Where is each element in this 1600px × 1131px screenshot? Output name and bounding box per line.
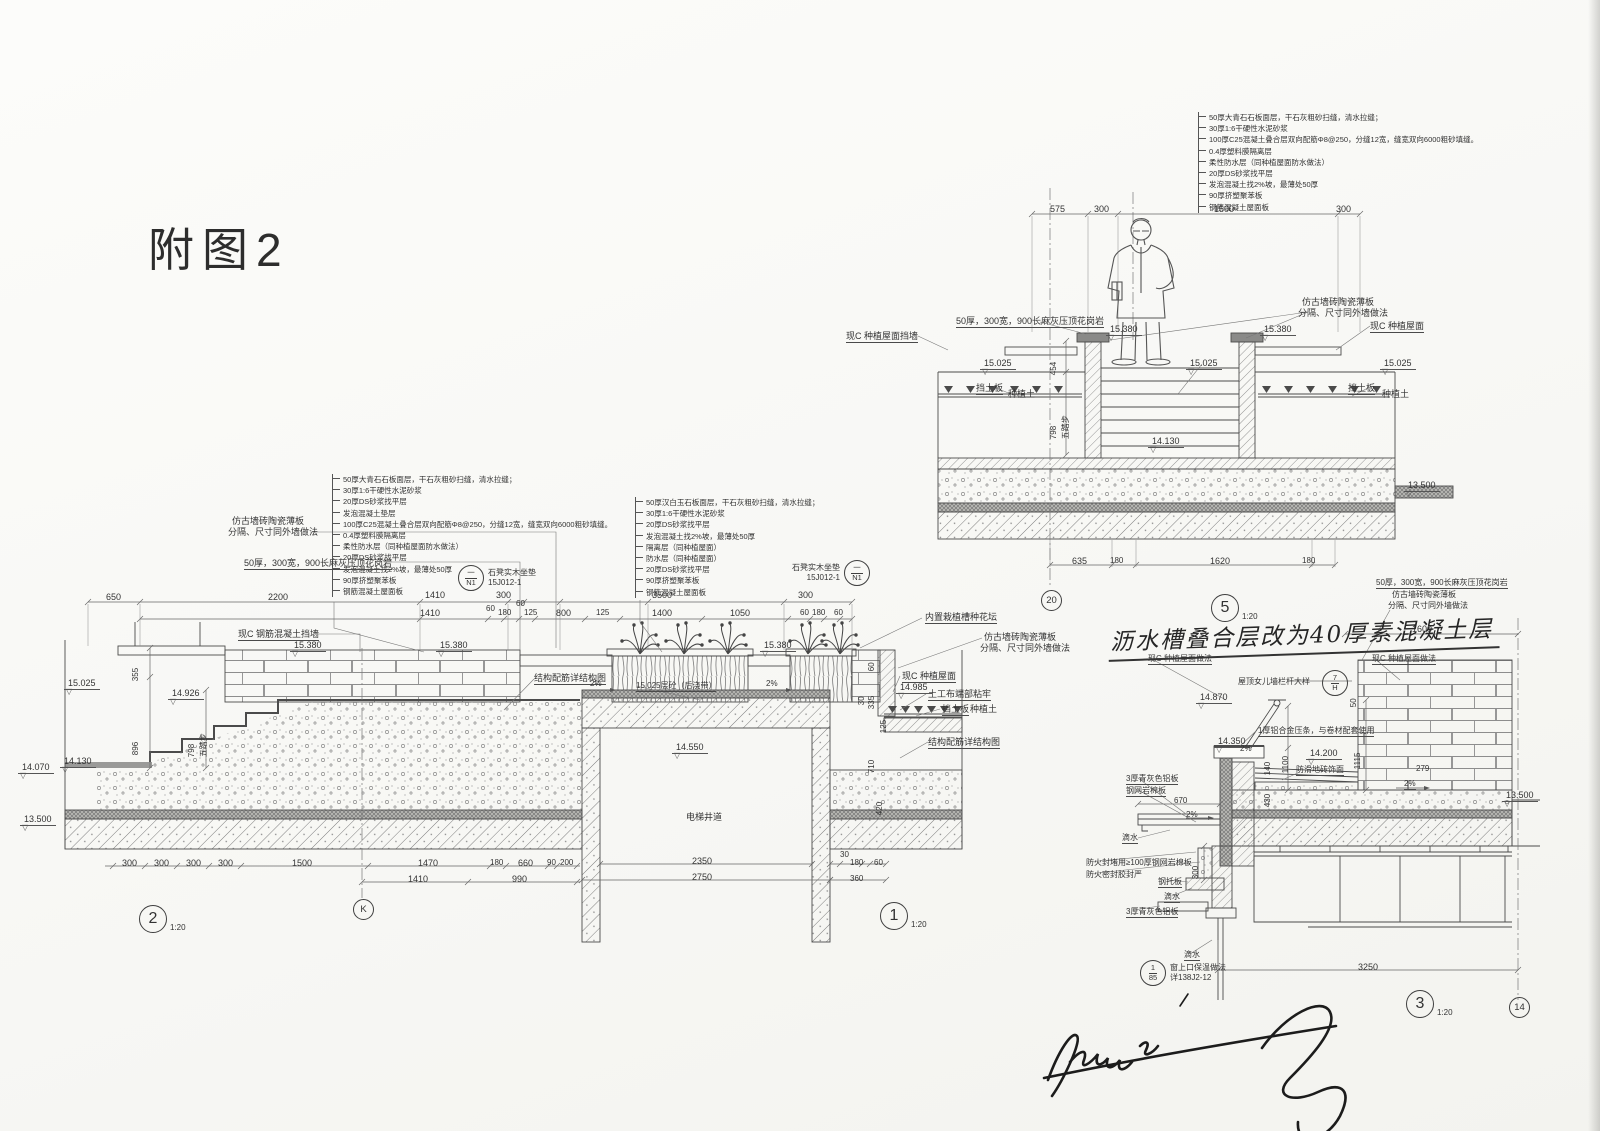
label-tile-panel: 仿古墙砖陶瓷薄板 <box>1302 297 1374 307</box>
label-tile-panel: 分隔、尺寸同外墙做法 <box>1298 308 1388 318</box>
label-tile-panel: 分隔、尺寸同外墙做法 <box>228 527 318 537</box>
label-soil: 种植土 <box>1382 389 1409 399</box>
label-green-roof: 现C 种植屋面 <box>1370 321 1424 333</box>
layer-line: 隔离层（同种植屋面） <box>636 542 819 553</box>
detail-ref-bubble: 7 H <box>1322 670 1348 696</box>
elevation: 15.380 <box>436 640 472 652</box>
layer-line: 30厚1:6干硬性水泥砂浆 <box>333 485 612 496</box>
drawing-sheet: 附图2 50厚大青石石板面层，干石灰粗砂扫缝，清水拉缝；30厚1:6干硬性水泥砂… <box>0 0 1600 1131</box>
dim: 990 <box>512 874 527 884</box>
dim: 335 <box>867 696 876 709</box>
slope: 2% <box>1240 744 1252 753</box>
dim: 1050 <box>730 608 750 618</box>
label-rebar: 结构配筋详结构图 <box>928 737 1000 749</box>
dim: 125 <box>596 608 609 617</box>
layer-line: 30厚1:6干硬性水泥砂浆 <box>1199 123 1478 134</box>
dim: 454 <box>1049 362 1058 375</box>
elevation: 15.025 <box>980 358 1016 370</box>
dim: 300 <box>1336 204 1351 214</box>
dim: 125 <box>879 720 888 733</box>
elevation: 14.200 <box>1306 748 1342 760</box>
dim: 1115 <box>1353 753 1362 770</box>
bench-label: 石凳实木坐垫 <box>488 568 536 578</box>
dim: 180 <box>850 858 863 867</box>
label-coping: 50厚，300宽，900长麻灰压顶花岗岩 <box>1376 578 1508 589</box>
dim: 1620 <box>1210 556 1230 566</box>
dim: 五踏步 <box>1061 415 1070 439</box>
label-steel-plate: 钢托板 <box>1158 877 1182 888</box>
layer-line: 发泡混凝土找2%坡，最薄处50厚 <box>636 531 819 542</box>
label-parapet: 屋顶女儿墙栏杆大样 <box>1238 677 1310 686</box>
elevation: 15.380 <box>760 640 796 652</box>
dim: 140 <box>1263 762 1272 775</box>
label-geotextile: 土工布端部粘牢 <box>928 689 991 701</box>
ref-bottom: N1 <box>466 579 476 587</box>
elevation: 14.926 <box>168 688 204 700</box>
dim: 635 <box>1072 556 1087 566</box>
elevation: 15.380 <box>1106 324 1142 336</box>
ref-bottom: 85 <box>1149 974 1157 982</box>
dim: 60 <box>834 608 843 617</box>
layer-line: 50厚汉白玉石板面层，干石灰粗砂扫缝，清水拉缝； <box>636 497 819 508</box>
dim: 355 <box>131 668 140 681</box>
grid-bubble-20: 20 <box>1041 590 1062 611</box>
dim: 300 <box>496 590 511 600</box>
elevation: 14.070 <box>18 762 54 774</box>
dim: 1400 <box>652 608 672 618</box>
detail-bubble-2: 2 1:20 <box>139 905 186 933</box>
label-tile-panel: 仿古墙砖陶瓷薄板 <box>1392 590 1456 599</box>
dim: 650 <box>106 592 121 602</box>
window-ref: 详138J2-12 <box>1170 973 1226 983</box>
label-tile-panel: 分隔、尺寸同外墙做法 <box>1388 601 1468 610</box>
label-drip: 滴水 <box>1122 833 1138 844</box>
layer-line: 柔性防水层（同种植屋面防水做法） <box>333 541 612 552</box>
dim: 3250 <box>1358 962 1378 972</box>
dim: 60 <box>516 599 525 608</box>
detail-number: 1 <box>880 902 908 930</box>
dim: 2350 <box>692 856 712 866</box>
layer-line: 发泡混凝土垫层 <box>333 508 612 519</box>
detail-ref-bubble: 一 N1 <box>844 560 870 586</box>
label-soil: 种植土 <box>970 704 997 714</box>
detail-bubble-1: 1 1:20 <box>880 902 927 930</box>
label-soil-board: 挡土板 <box>942 704 969 716</box>
label-pour-strip: 15.025层砼（后浇带） <box>636 681 716 692</box>
label-drip: 滴水 <box>1164 892 1180 903</box>
dim: 1410 <box>408 874 428 884</box>
signature <box>1044 994 1345 1131</box>
slope: 2% <box>1186 810 1198 819</box>
layer-line: 柔性防水层（同种植屋面防水做法） <box>1199 157 1478 168</box>
elevation: 15.025 <box>1380 358 1416 370</box>
dim: 1410 <box>425 590 445 600</box>
label-tile-panel: 仿古墙砖陶瓷薄板 <box>232 516 304 526</box>
dim: 420 <box>875 802 884 815</box>
dim: 90 <box>547 858 556 867</box>
bench-ref: 15J012-1 <box>488 578 536 588</box>
elevation: 14.130 <box>60 756 96 768</box>
dim: 575 <box>1050 204 1065 214</box>
grid-bubble-14: 14 <box>1509 997 1530 1018</box>
detail-scale: 1:20 <box>170 923 186 933</box>
layer-line: 50厚大青石石板面层，干石灰粗砂扫缝，清水拉缝； <box>333 474 612 485</box>
slope: 2% <box>1404 779 1416 790</box>
elevation: 15.380 <box>290 640 326 652</box>
label-fire-seal: 防火密封胶封严 <box>1086 870 1142 879</box>
elevation: 14.130 <box>1148 436 1184 448</box>
detail-ref-bubble: 1 85 <box>1140 960 1166 986</box>
layer-line: 0.4厚塑料膜隔离层 <box>1199 146 1478 157</box>
bench-label: 石凳实木坐垫 <box>792 563 840 573</box>
dim: 300 <box>798 590 813 600</box>
elevator-shaft-label: 电梯井道 <box>686 812 722 822</box>
dim: 125 <box>524 608 537 617</box>
label-green-roof: 现C 种植屋面 <box>902 671 956 683</box>
layer-line: 0.4厚塑料膜隔离层 <box>333 530 612 541</box>
label-al-strip: 1厚铝合金压条，与卷材配套使用 <box>1258 726 1374 737</box>
dim: 798 <box>187 744 196 757</box>
dim: 30 <box>840 850 849 859</box>
label-tile: 防滑地砖饰面 <box>1296 765 1344 776</box>
dim: 300 <box>218 858 233 868</box>
layer-line: 30厚1:6干硬性水泥砂浆 <box>636 508 819 519</box>
dim: 1500 <box>292 858 312 868</box>
layer-stack-topright: 50厚大青石石板面层，干石灰粗砂扫缝，清水拉缝；30厚1:6干硬性水泥砂浆100… <box>1198 112 1478 213</box>
label-tile-panel: 分隔、尺寸同外墙做法 <box>980 643 1070 653</box>
label-wall: 现C 种植屋面挡墙 <box>846 331 918 343</box>
callout-window-head: 1 85 窗上口保温做法 详138J2-12 <box>1140 960 1226 986</box>
elevation: 15.380 <box>1260 324 1296 336</box>
dim: 300 <box>122 858 137 868</box>
label-rockwool: 钢网岩棉板 <box>1126 786 1166 797</box>
label-tile-panel: 仿古墙砖陶瓷薄板 <box>984 632 1056 642</box>
dim: 180 <box>490 858 503 867</box>
elevation: 13.500 <box>1404 480 1440 492</box>
label-fire-block: 防火封堵用≥100厚钢网岩棉板 <box>1086 858 1192 867</box>
elevation: 13.500 <box>1502 790 1538 802</box>
label-soil-board: 挡土板 <box>976 383 1003 395</box>
label-green-roof: 现C 种植屋面做法 <box>1372 654 1436 665</box>
dim: 180 <box>1302 556 1315 565</box>
dim: 200 <box>560 858 573 867</box>
dim: 60 <box>867 662 876 671</box>
dim: 60 <box>486 604 495 613</box>
dim: 2200 <box>268 592 288 602</box>
detail-ref-bubble: 一 N1 <box>458 565 484 591</box>
dim: 670 <box>1174 796 1187 805</box>
callout-parapet-railing: 7 H <box>1322 670 1348 696</box>
dim: 660 <box>518 858 533 868</box>
label-planter: 内置栽植槽种花坛 <box>925 612 997 624</box>
label-soil: 种植土 <box>1008 389 1035 399</box>
section-2-1-linework <box>65 622 962 942</box>
callout-bench-right: 石凳实木坐垫 15J012-1 一 N1 <box>792 560 870 586</box>
dim: 360 <box>850 874 863 883</box>
dim: 798 <box>1049 426 1058 439</box>
label-coping: 50厚，300宽，900长麻灰压顶花岗岩 <box>956 316 1104 328</box>
dim: 50 <box>1349 698 1358 707</box>
slope: 2% <box>766 679 778 688</box>
dim: 3500 <box>652 590 672 600</box>
elevation: 14.985 <box>896 682 932 694</box>
dim: 430 <box>1263 794 1272 807</box>
dim: 279 <box>1416 764 1429 773</box>
dim: 1470 <box>418 858 438 868</box>
label-al-plate: 3厚青灰色铝板 <box>1126 907 1178 918</box>
layer-line: 20厚DS砂浆找平层 <box>1199 168 1478 179</box>
dim: 30 <box>857 696 866 705</box>
dim: 300 <box>1191 866 1200 879</box>
layer-line: 20厚DS砂浆找平层 <box>636 519 819 530</box>
dim: 五踏步 <box>199 733 208 757</box>
dim: 180 <box>812 608 825 617</box>
ref-bottom: N1 <box>852 574 862 582</box>
elevation: 14.550 <box>672 742 708 754</box>
dim: 300 <box>154 858 169 868</box>
dim: 1500 <box>1214 204 1234 214</box>
layer-line: 100厚C25混凝土叠合层双向配筋Φ8@250，分缝12宽，缝宽双向6000粗砂… <box>333 519 612 530</box>
dim: 710 <box>867 760 876 773</box>
elevation: 13.500 <box>20 814 56 826</box>
elevation: 15.025 <box>1186 358 1222 370</box>
dim: 1100 <box>1281 756 1290 773</box>
grid-bubble-k: K <box>353 899 374 920</box>
label-soil-board: 挡土板 <box>1348 383 1375 395</box>
dim: 60 <box>800 608 809 617</box>
layer-line: 发泡混凝土找2%坡，最薄处50厚 <box>1199 179 1478 190</box>
dim: 2750 <box>692 872 712 882</box>
layer-line: 90厚挤塑聚苯板 <box>1199 190 1478 201</box>
page-title: 附图2 <box>148 214 290 280</box>
dim: 300 <box>186 858 201 868</box>
layer-line: 100厚C25混凝土叠合层双向配筋Φ8@250，分缝12宽，缝宽双向6000粗砂… <box>1199 134 1478 145</box>
dim: 300 <box>1094 204 1109 214</box>
dim: 896 <box>131 742 140 755</box>
bench-ref: 15J012-1 <box>807 573 840 583</box>
layer-line: 20厚DS砂浆找平层 <box>333 496 612 507</box>
scan-edge-shadow <box>1588 0 1600 1131</box>
layer-line: 50厚大青石石板面层，干石灰粗砂扫缝，清水拉缝； <box>1199 112 1478 123</box>
detail-bubble-3: 3 1:20 <box>1406 990 1453 1018</box>
dim: 1410 <box>420 608 440 618</box>
elevation: 15.025 <box>64 678 100 690</box>
label-coping: 50厚，300宽，900长麻灰压顶花岗岩 <box>244 558 392 570</box>
dim: 800 <box>556 608 571 618</box>
label-al-plate: 3厚青灰色铝板 <box>1126 774 1178 785</box>
elevation: 14.870 <box>1196 692 1232 704</box>
detail-number: 3 <box>1406 990 1434 1018</box>
detail-scale: 1:20 <box>1437 1008 1453 1018</box>
dim: 60 <box>874 858 883 867</box>
ref-bottom: H <box>1332 684 1337 692</box>
callout-bench-left: 一 N1 石凳实木坐垫 15J012-1 <box>458 565 536 591</box>
dim: 180 <box>1110 556 1123 565</box>
window-label: 窗上口保温做法 <box>1170 963 1226 973</box>
dim: 180 <box>498 608 511 617</box>
detail-number: 2 <box>139 905 167 933</box>
detail-scale: 1:20 <box>911 920 927 930</box>
slope: 2% <box>590 679 602 688</box>
